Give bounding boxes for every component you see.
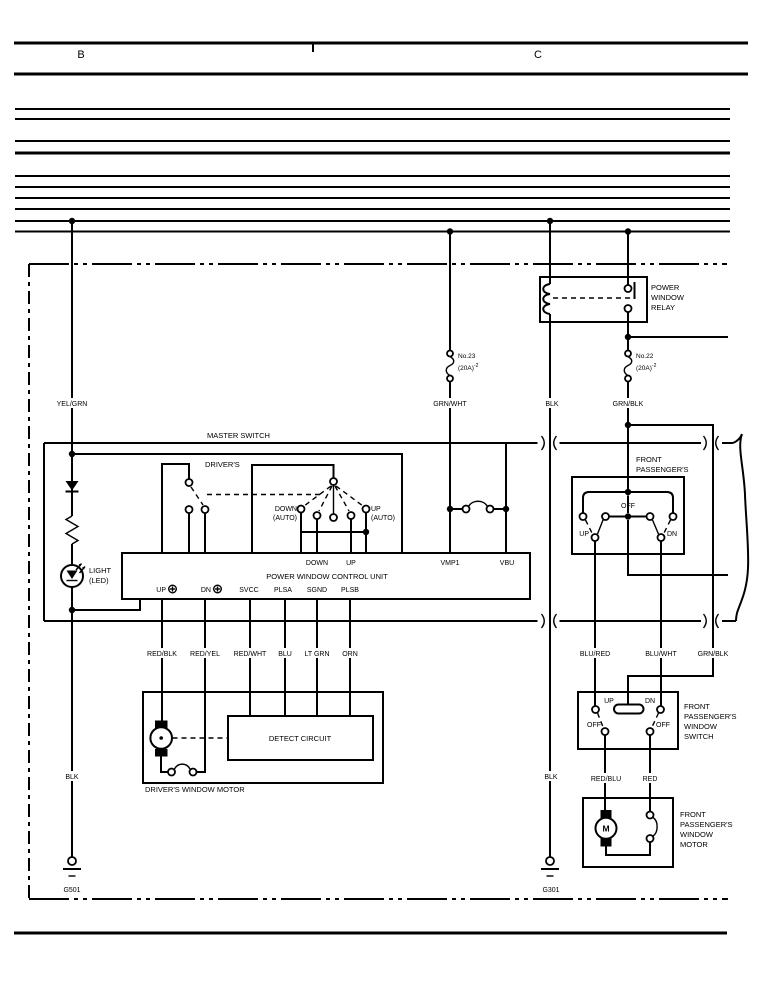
harness-boundary bbox=[29, 264, 728, 899]
svg-text:SWITCH: SWITCH bbox=[684, 732, 714, 741]
label-blu: BLU bbox=[278, 651, 292, 658]
ground-icon-g501 bbox=[63, 857, 81, 876]
fuse23-name: No.23 bbox=[458, 353, 476, 360]
g501-label: G501 bbox=[63, 887, 80, 894]
pin-plsa: PLSA bbox=[274, 587, 292, 594]
detect-circuit-label: DETECT CIRCUIT bbox=[269, 734, 332, 743]
svg-text:WINDOW: WINDOW bbox=[684, 722, 718, 731]
power-window-circuit-diagram: B C bbox=[0, 0, 765, 993]
bus-wires bbox=[15, 109, 730, 232]
label-red-wht: RED/WHT bbox=[234, 651, 267, 658]
svg-text:WINDOW: WINDOW bbox=[680, 830, 714, 839]
label-orn: ORN bbox=[342, 651, 358, 658]
wiring-diagram-page: B C bbox=[0, 0, 765, 993]
svg-text:(LED): (LED) bbox=[89, 576, 109, 585]
pin-down: DOWN bbox=[306, 560, 328, 567]
passenger-window-switch bbox=[578, 692, 678, 812]
section-label-c: C bbox=[534, 49, 542, 61]
svg-text:(AUTO): (AUTO) bbox=[371, 515, 395, 522]
psw-up-label: UP bbox=[604, 698, 614, 705]
fuse22-name: No.22 bbox=[636, 353, 654, 360]
label-red-blu: RED/BLU bbox=[591, 776, 621, 783]
section-label-b: B bbox=[77, 49, 84, 61]
fuse-no23-icon bbox=[446, 351, 454, 382]
led-icon bbox=[61, 564, 85, 588]
diode-icon bbox=[66, 481, 79, 492]
pin-sgnd: SGND bbox=[307, 587, 327, 594]
fuse22-rating: (20A)-2 bbox=[636, 363, 657, 372]
pin-svcc: SVCC bbox=[239, 587, 258, 594]
relay-label: POWER bbox=[651, 283, 680, 292]
off-label: OFF bbox=[621, 503, 635, 510]
dn-label: DN bbox=[667, 531, 677, 538]
svg-text:WINDOW: WINDOW bbox=[651, 293, 685, 302]
svg-text:(AUTO): (AUTO) bbox=[273, 515, 297, 522]
light-label: LIGHT bbox=[89, 566, 112, 575]
passenger-motor-label: FRONT bbox=[680, 810, 706, 819]
pin-plsb: PLSB bbox=[341, 587, 359, 594]
svg-text:PASSENGER'S: PASSENGER'S bbox=[680, 820, 733, 829]
label-blk-mid: BLK bbox=[545, 401, 559, 408]
vmp1-vbu-jumper bbox=[450, 443, 506, 553]
up-auto-label: UP bbox=[371, 506, 381, 513]
drivers-label: DRIVER'S bbox=[205, 460, 240, 469]
pin-up-out: UP bbox=[156, 587, 166, 594]
passenger-section-switch bbox=[572, 477, 728, 706]
psw-off-left: OFF bbox=[587, 722, 601, 729]
motor-m-label: M bbox=[602, 824, 609, 834]
label-blk-left: BLK bbox=[65, 774, 79, 781]
front-passenger-label: FRONT bbox=[636, 455, 662, 464]
label-grn-blk2: GRN/BLK bbox=[698, 651, 729, 658]
resistor-icon bbox=[66, 516, 78, 544]
label-red: RED bbox=[643, 776, 658, 783]
label-yel-grn: YEL/GRN bbox=[57, 401, 88, 408]
wire-yel-grn bbox=[72, 221, 402, 857]
svg-text:RELAY: RELAY bbox=[651, 303, 675, 312]
passenger-motor-assembly bbox=[583, 798, 673, 867]
label-grn-wht: GRN/WHT bbox=[433, 401, 467, 408]
power-window-relay bbox=[540, 277, 647, 322]
auto-fan-switch bbox=[252, 465, 370, 553]
plus-circle-icon bbox=[169, 585, 177, 593]
fuse23-rating: (20A)-2 bbox=[458, 363, 479, 372]
rocker-icon bbox=[614, 705, 644, 714]
svg-text:MOTOR: MOTOR bbox=[680, 840, 708, 849]
psw-off-right: OFF bbox=[656, 722, 670, 729]
svg-text:PASSENGER'S: PASSENGER'S bbox=[636, 465, 689, 474]
label-red-yel: RED/YEL bbox=[190, 651, 220, 658]
ground-icon-g301 bbox=[541, 857, 559, 876]
pin-up: UP bbox=[346, 560, 356, 567]
driver-motor-icon bbox=[150, 721, 172, 757]
up-label: UP bbox=[579, 531, 589, 538]
master-switch-title: MASTER SWITCH bbox=[207, 431, 270, 440]
break-marks bbox=[542, 436, 719, 628]
pin-vmp1: VMP1 bbox=[440, 560, 459, 567]
driver-motor-label: DRIVER'S WINDOW MOTOR bbox=[145, 785, 245, 794]
down-auto-label: DOWN bbox=[275, 506, 297, 513]
continuation-curve bbox=[733, 434, 748, 621]
label-blk-right: BLK bbox=[544, 774, 558, 781]
pin-vbu: VBU bbox=[500, 560, 514, 567]
g301-label: G301 bbox=[542, 887, 559, 894]
label-blu-red: BLU/RED bbox=[580, 651, 610, 658]
label-blu-wht: BLU/WHT bbox=[645, 651, 677, 658]
fuse-no22-icon bbox=[624, 351, 632, 382]
label-red-blk: RED/BLK bbox=[147, 651, 177, 658]
relay-coil-icon bbox=[543, 284, 550, 314]
psw-dn-label: DN bbox=[645, 698, 655, 705]
label-grn-blk: GRN/BLK bbox=[613, 401, 644, 408]
plus-circle-icon bbox=[214, 585, 222, 593]
psw-box-label: FRONT bbox=[684, 702, 710, 711]
label-lt-grn: LT GRN bbox=[304, 651, 329, 658]
driver-motor-assembly bbox=[143, 599, 383, 783]
svg-text:PASSENGER'S: PASSENGER'S bbox=[684, 712, 737, 721]
control-unit-title: POWER WINDOW CONTROL UNIT bbox=[266, 572, 388, 581]
pin-dn-out: DN bbox=[201, 587, 211, 594]
